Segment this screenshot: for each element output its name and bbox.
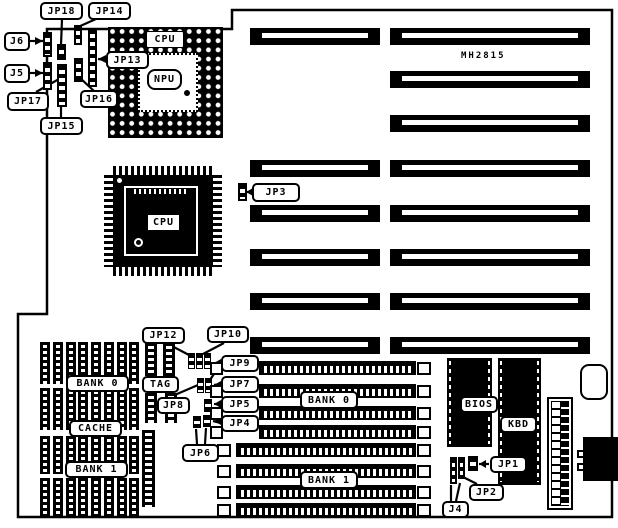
slot-key: [262, 298, 368, 303]
dip-chip-bank1: [91, 478, 101, 516]
cpu-chip-pins-right: [213, 175, 222, 267]
dip-chip-bank1: [53, 436, 63, 474]
cpu-chip-pins-top: [113, 166, 213, 175]
dip-chip-tag: [142, 430, 155, 507]
isa-slot-8-ext: [250, 337, 380, 354]
jumper-jp12: [188, 353, 195, 369]
label-jp6: JP6: [182, 444, 219, 462]
simm-socket-bank0-4: [259, 425, 416, 439]
slot-key: [262, 210, 368, 215]
label-jp3: JP3: [252, 183, 300, 202]
jumper-jp1: [468, 456, 478, 471]
slot-key: [402, 298, 578, 303]
cpu-chip-label: CPU: [146, 213, 181, 232]
jumper-jp16: [74, 58, 83, 82]
dip-chip-bank0: [129, 388, 139, 430]
label-jp15: JP15: [40, 117, 83, 135]
dip-chip-bank0: [40, 342, 50, 384]
slot-key: [262, 254, 368, 259]
label-bank1-cache: BANK 1: [65, 461, 128, 478]
battery: [580, 364, 608, 400]
kbd-socket-line-right: [537, 361, 539, 482]
simm-latch-right: [417, 385, 431, 398]
label-jp17: JP17: [7, 92, 49, 111]
label-kbd: KBD: [500, 416, 537, 433]
isa-slot-6-ext: [250, 249, 380, 266]
din-tab-bottom: [577, 463, 585, 471]
dip-chip-tag: [163, 343, 175, 376]
label-bios: BIOS: [460, 396, 498, 413]
label-jp13: JP13: [106, 51, 149, 69]
label-bank0-cache: BANK 0: [66, 375, 129, 392]
simm-latch-left: [217, 444, 231, 457]
label-bank0-simm: BANK 0: [300, 391, 358, 409]
simm-latch-right: [417, 362, 431, 375]
simm-latch-right: [417, 426, 431, 439]
label-cache: CACHE: [69, 420, 122, 437]
motherboard-diagram: CPU NPU CPU MH2815 JP18 JP14 J6 J5: [0, 0, 618, 528]
slot-key: [262, 342, 368, 347]
jumper-jp18: [57, 44, 66, 60]
keyboard-header-pins-left: [551, 401, 561, 506]
isa-slot-8: [390, 337, 590, 354]
isa-slot-1: [390, 28, 590, 45]
isa-slot-6: [390, 249, 590, 266]
cpu-chip-corner-dot: [117, 178, 122, 183]
isa-slot-2: [390, 71, 590, 88]
label-jp2: JP2: [469, 484, 504, 501]
din-tab-top: [577, 450, 585, 458]
jumper-jp13: [88, 28, 97, 87]
simm-latch-right: [417, 465, 431, 478]
simm-latch-left: [217, 486, 231, 499]
jumper-jp2-col2: [458, 457, 465, 479]
isa-slot-7: [390, 293, 590, 310]
simm-latch-right: [417, 504, 431, 517]
cpu-chip-pins-bottom: [113, 267, 213, 276]
dip-chip-bank0: [53, 342, 63, 384]
label-jp4: JP4: [221, 415, 259, 432]
label-j6: J6: [4, 32, 30, 51]
slot-key: [402, 120, 578, 125]
slot-key: [262, 165, 368, 170]
label-j5: J5: [4, 64, 30, 83]
jumper-jp3: [238, 183, 247, 201]
jumper-j4-col1: [450, 457, 457, 484]
npu-label: NPU: [147, 69, 182, 90]
isa-slot-5: [390, 205, 590, 222]
simm-socket-bank0-1: [259, 361, 416, 375]
jumper-jp14: [74, 25, 82, 45]
jumper-jp8: [197, 378, 204, 393]
dip-chip-bank1: [104, 478, 114, 516]
slot-key: [402, 210, 578, 215]
isa-slot-7-ext: [250, 293, 380, 310]
dip-chip-bank1: [129, 478, 139, 516]
keyboard-header: [547, 397, 573, 510]
isa-slot-3: [390, 115, 590, 132]
jumper-jp6: [193, 416, 201, 428]
dip-chip-tag: [145, 343, 157, 376]
slot-key: [402, 33, 578, 38]
dip-chip-bank1: [117, 478, 127, 516]
jumper-j5: [43, 62, 52, 90]
dip-chip-bank1: [53, 478, 63, 516]
slot-key: [262, 33, 368, 38]
isa-slot-1-ext: [250, 28, 380, 45]
keyboard-header-pins-right: [561, 401, 569, 506]
dip-chip-bank1: [78, 478, 88, 516]
slot-key: [402, 165, 578, 170]
label-jp9: JP9: [221, 355, 259, 372]
simm-latch-right: [417, 486, 431, 499]
cpu-chip-pin1-circle: [134, 238, 143, 247]
dip-chip-bank0: [40, 388, 50, 430]
label-jp10: JP10: [207, 326, 249, 343]
label-j4: J4: [442, 501, 469, 518]
jumper-jp10-a: [196, 353, 203, 369]
isa-slot-5-ext: [250, 205, 380, 222]
npu-pin1-dot: [184, 90, 190, 96]
dip-chip-bank1: [129, 436, 139, 474]
label-jp8: JP8: [157, 397, 190, 414]
board-model-text: MH2815: [461, 51, 506, 61]
label-bank1-simm: BANK 1: [300, 471, 358, 489]
simm-latch-right: [417, 444, 431, 457]
simm-latch-right: [417, 407, 431, 420]
label-jp16: JP16: [80, 90, 118, 108]
jumper-j6: [43, 32, 52, 57]
bios-socket-line-left: [449, 361, 451, 444]
slot-key: [402, 254, 578, 259]
label-jp1: JP1: [490, 456, 527, 473]
label-jp7: JP7: [221, 376, 259, 393]
dip-chip-tag: [145, 393, 157, 423]
jumper-jp15-jp17: [57, 64, 67, 107]
cpu-chip-inner-ticks: [134, 189, 186, 194]
simm-latch-left: [217, 504, 231, 517]
slot-key: [402, 342, 578, 347]
dip-chip-bank1: [40, 436, 50, 474]
label-jp5: JP5: [221, 396, 259, 413]
cpu-chip-pins-left: [104, 175, 113, 267]
cpu-socket-label: CPU: [146, 31, 184, 48]
keyboard-din-connector: [583, 437, 618, 481]
slot-key: [402, 76, 578, 81]
label-jp18: JP18: [40, 2, 83, 20]
simm-socket-bank1-4: [236, 503, 416, 517]
label-jp14: JP14: [88, 2, 131, 20]
isa-slot-4: [390, 160, 590, 177]
dip-chip-bank0: [129, 342, 139, 384]
dip-chip-bank0: [53, 388, 63, 430]
simm-latch-left: [217, 465, 231, 478]
dip-chip-bank1: [40, 478, 50, 516]
dip-chip-bank1: [66, 478, 76, 516]
label-tag: TAG: [142, 376, 179, 393]
label-jp12: JP12: [142, 327, 185, 344]
isa-slot-4-ext: [250, 160, 380, 177]
simm-socket-bank1-1: [236, 443, 416, 457]
